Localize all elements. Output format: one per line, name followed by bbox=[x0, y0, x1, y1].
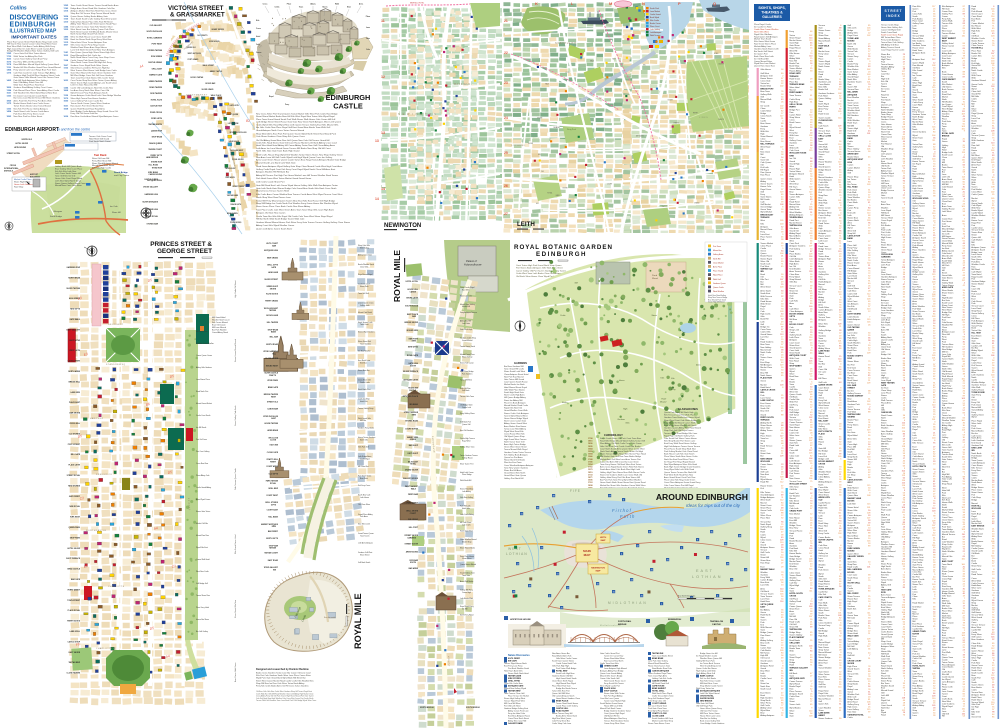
svg-text:Shop North: Shop North bbox=[847, 456, 857, 459]
svg-text:Antiques Stores: Antiques Stores bbox=[760, 546, 774, 549]
svg-text:GRILL BAR: GRILL BAR bbox=[789, 642, 800, 645]
svg-text:Crafts Shop: Crafts Shop bbox=[789, 98, 800, 101]
svg-text:33: 33 bbox=[868, 233, 871, 235]
svg-text:Queen Leith Arms Tavern South: Queen Leith Arms Tavern South Silver bbox=[256, 228, 293, 231]
svg-text:Gate West: Gate West bbox=[847, 516, 857, 519]
svg-text:Shore Hill: Shore Hill bbox=[112, 212, 121, 214]
svg-text:LEITH HOUSE: LEITH HOUSE bbox=[228, 123, 239, 125]
svg-text:34: 34 bbox=[868, 151, 871, 153]
svg-text:Row Arms Lane Hill Grill Castl: Row Arms Lane Hill Grill Castle Wynd Lei… bbox=[256, 156, 333, 159]
svg-text:Park Hotel: Park Hotel bbox=[818, 95, 828, 98]
svg-text:South Cafe: South Cafe bbox=[760, 262, 771, 265]
svg-text:Gifts Walk: Gifts Walk bbox=[818, 145, 827, 148]
svg-text:Leith Abbey: Leith Abbey bbox=[847, 648, 857, 651]
svg-text:West: West bbox=[847, 670, 852, 673]
svg-text:1676: 1676 bbox=[7, 61, 12, 63]
svg-text:Abbey: Abbey bbox=[310, 3, 315, 6]
svg-text:Park: Park bbox=[760, 239, 764, 241]
svg-text:Antiques Mound: Antiques Mound bbox=[789, 173, 803, 176]
svg-text:OLD CRAFTS: OLD CRAFTS bbox=[197, 34, 207, 37]
svg-text:Cross: Cross bbox=[263, 4, 268, 6]
svg-text:Antiques South: Antiques South bbox=[789, 693, 803, 696]
svg-text:Leith Place: Leith Place bbox=[789, 336, 800, 339]
svg-text:75: 75 bbox=[810, 481, 813, 483]
svg-text:26: 26 bbox=[868, 324, 871, 326]
svg-text:Shore Castle: Shore Castle bbox=[818, 422, 830, 425]
svg-text:Arms Terrace: Arms Terrace bbox=[818, 132, 831, 135]
svg-text:Close Abbey: Close Abbey bbox=[818, 476, 829, 479]
svg-text:Court Town: Court Town bbox=[847, 374, 857, 377]
svg-text:Castle Grand: Castle Grand bbox=[650, 13, 661, 16]
svg-text:Grill Tartan: Grill Tartan bbox=[789, 413, 799, 416]
svg-text:Kilts Kilts: Kilts Kilts bbox=[760, 297, 768, 300]
svg-text:Town South South Crafts Galler: Town South South Crafts Gallery East Wes… bbox=[71, 18, 117, 21]
svg-text:East: East bbox=[760, 308, 764, 311]
svg-text:Wynd Terrace Ferry Park Antiqu: Wynd Terrace Ferry Park Antiques South bbox=[71, 91, 108, 94]
svg-text:Shop Mill Bridge Inn Castle No: Shop Mill Bridge Inn Castle North Port W… bbox=[256, 202, 338, 205]
svg-text:13: 13 bbox=[375, 139, 379, 143]
svg-text:CANON QUEEN: CANON QUEEN bbox=[149, 142, 163, 145]
svg-text:75: 75 bbox=[868, 393, 871, 395]
svg-text:Port Gallery: Port Gallery bbox=[789, 247, 800, 250]
svg-text:LANE ROAD: LANE ROAD bbox=[818, 350, 830, 353]
svg-text:115: 115 bbox=[809, 150, 813, 152]
svg-text:Silver Hotel: Silver Hotel bbox=[789, 86, 800, 89]
svg-text:East Street: East Street bbox=[818, 417, 828, 420]
svg-text:South East: South East bbox=[760, 292, 770, 295]
svg-text:61: 61 bbox=[839, 710, 842, 712]
svg-text:Abbey Antiques: Abbey Antiques bbox=[818, 481, 832, 484]
svg-text:Port West: Port West bbox=[760, 265, 769, 268]
svg-text:North Tartan High Grand Park G: North Tartan High Grand Park Green bbox=[71, 33, 104, 36]
svg-text:103: 103 bbox=[780, 287, 784, 289]
svg-text:NORTH CRAFTS: NORTH CRAFTS bbox=[818, 539, 834, 542]
svg-text:Crafts: Crafts bbox=[818, 204, 823, 207]
svg-text:Gifts: Gifts bbox=[760, 315, 764, 318]
svg-text:Stores Canon: Stores Canon bbox=[818, 207, 830, 210]
svg-text:Ferry: Ferry bbox=[789, 31, 794, 33]
svg-text:Kirk Leith: Kirk Leith bbox=[847, 211, 855, 214]
svg-text:Road Hill: Road Hill bbox=[760, 482, 769, 484]
svg-text:Bank Street: Bank Street bbox=[847, 379, 858, 382]
svg-text:Court Grand: Court Grand bbox=[818, 491, 829, 494]
svg-text:Brae Crafts: Brae Crafts bbox=[760, 404, 770, 407]
svg-text:Tavern Stores: Tavern Stores bbox=[847, 522, 859, 525]
svg-text:69: 69 bbox=[810, 222, 813, 224]
svg-text:Court North: Court North bbox=[847, 201, 857, 204]
svg-text:Hotel Brae: Hotel Brae bbox=[760, 600, 770, 603]
svg-text:East: East bbox=[760, 565, 764, 568]
svg-text:61: 61 bbox=[839, 703, 842, 705]
svg-text:MOUND: MOUND bbox=[847, 551, 855, 553]
svg-text:G R A S S M A R K E T: G R A S S M A R K E T bbox=[186, 94, 208, 97]
svg-text:Grill Market: Grill Market bbox=[760, 203, 771, 206]
svg-text:CROSS GALLERY: CROSS GALLERY bbox=[143, 186, 159, 189]
svg-text:North: North bbox=[789, 505, 794, 508]
svg-text:26: 26 bbox=[504, 184, 508, 188]
svg-text:Gifts: Gifts bbox=[818, 156, 822, 159]
svg-text:Books Canon: Books Canon bbox=[650, 23, 661, 25]
svg-text:Place New: Place New bbox=[760, 518, 770, 520]
svg-text:25: 25 bbox=[781, 380, 784, 382]
svg-text:New Gifts: New Gifts bbox=[818, 86, 827, 89]
svg-text:BOOKS TARTAN: BOOKS TARTAN bbox=[191, 76, 204, 79]
svg-text:1110: 1110 bbox=[7, 67, 12, 69]
svg-text:Crafts Books: Crafts Books bbox=[847, 316, 858, 319]
svg-text:Shore Gifts: Shore Gifts bbox=[847, 509, 857, 512]
svg-text:Antiques Silver: Antiques Silver bbox=[818, 212, 832, 215]
svg-text:Castle: Castle bbox=[789, 385, 796, 388]
svg-text:WEST: WEST bbox=[847, 482, 853, 484]
svg-text:South: South bbox=[847, 450, 852, 453]
svg-text:Lane Market: Lane Market bbox=[650, 10, 660, 13]
svg-text:Tartan: Tartan bbox=[789, 34, 795, 37]
svg-text:51: 51 bbox=[868, 658, 871, 660]
svg-text:Grill Gifts: Grill Gifts bbox=[789, 388, 797, 391]
svg-text:84: 84 bbox=[810, 651, 813, 653]
svg-text:27: 27 bbox=[504, 212, 508, 216]
svg-text:Mill Castle: Mill Castle bbox=[760, 198, 770, 201]
svg-text:45: 45 bbox=[810, 352, 813, 354]
svg-text:Kilts Crafts Arms Canon Woolle: Kilts Crafts Arms Canon Woollen Brae Ter… bbox=[256, 193, 343, 196]
svg-text:72: 72 bbox=[810, 214, 813, 216]
svg-text:TARTAN KIRK: TARTAN KIRK bbox=[789, 628, 802, 631]
svg-text:33: 33 bbox=[839, 320, 842, 322]
svg-text:New Kirk Port House Gallery An: New Kirk Port House Gallery Antiques bbox=[14, 107, 48, 110]
svg-text:101: 101 bbox=[867, 89, 871, 91]
svg-text:Forth Bridge: Forth Bridge bbox=[50, 215, 63, 218]
svg-text:New Market: New Market bbox=[789, 513, 800, 516]
svg-text:Gate: Gate bbox=[366, 37, 370, 40]
svg-text:1405: 1405 bbox=[7, 79, 12, 82]
svg-text:20: 20 bbox=[839, 667, 842, 669]
svg-text:101: 101 bbox=[867, 567, 871, 569]
svg-text:Court Lane: Court Lane bbox=[818, 237, 829, 240]
svg-text:Lane Kilts: Lane Kilts bbox=[760, 584, 769, 587]
svg-text:Wynd Market: Wynd Market bbox=[847, 295, 859, 298]
svg-text:Silver Gate: Silver Gate bbox=[760, 427, 771, 430]
svg-text:115: 115 bbox=[809, 363, 813, 365]
svg-text:Bank Wynd: Bank Wynd bbox=[650, 17, 659, 19]
svg-text:1350: 1350 bbox=[64, 39, 69, 41]
svg-text:KILTS: KILTS bbox=[565, 72, 569, 74]
svg-text:68: 68 bbox=[868, 477, 871, 479]
svg-text:Gate Stores Gifts Mound Cross: Gate Stores Gifts Mound Cross Kilts Terr… bbox=[14, 76, 60, 79]
svg-text:Gate Bank: Gate Bank bbox=[847, 492, 856, 495]
svg-text:80: 80 bbox=[810, 489, 813, 491]
svg-text:BOOKS MARKET: BOOKS MARKET bbox=[818, 460, 834, 463]
svg-text:Cross Gate: Cross Gate bbox=[760, 80, 771, 83]
svg-text:Cafe: Cafe bbox=[256, 44, 260, 46]
svg-text:Walk Street: Walk Street bbox=[760, 302, 771, 305]
svg-text:Crafts: Crafts bbox=[275, 6, 280, 9]
svg-text:Place Court: Place Court bbox=[650, 25, 660, 28]
svg-text:BRAE QUEEN: BRAE QUEEN bbox=[227, 212, 238, 215]
svg-text:West Street: West Street bbox=[760, 286, 771, 289]
svg-text:GALLERY GREEN: GALLERY GREEN bbox=[847, 555, 864, 558]
svg-text:Port Green: Port Green bbox=[818, 643, 828, 646]
svg-text:Town Terrace: Town Terrace bbox=[789, 95, 802, 97]
svg-text:Walk Court: Walk Court bbox=[789, 357, 799, 360]
svg-text:North Royal: North Royal bbox=[760, 523, 771, 526]
svg-text:EAST: EAST bbox=[818, 137, 824, 140]
svg-text:Place Street: Place Street bbox=[760, 434, 771, 437]
svg-text:Abbey: Abbey bbox=[818, 296, 824, 299]
svg-text:88: 88 bbox=[839, 348, 842, 350]
svg-text:24: 24 bbox=[839, 444, 842, 446]
svg-text:Canon Gifts: Canon Gifts bbox=[789, 195, 800, 198]
svg-text:114: 114 bbox=[838, 687, 842, 689]
svg-text:Kilts: Kilts bbox=[847, 657, 851, 660]
svg-text:1454: 1454 bbox=[7, 110, 12, 113]
svg-text:NEW: NEW bbox=[612, 58, 616, 60]
svg-text:Terrace Court: Terrace Court bbox=[789, 284, 802, 287]
svg-text:SHORE ROW: SHORE ROW bbox=[151, 161, 162, 163]
svg-text:89: 89 bbox=[810, 704, 813, 706]
svg-text:Silver High Tavern Row House G: Silver High Tavern Row House Gardens bbox=[71, 97, 107, 100]
svg-text:OLD TARTAN: OLD TARTAN bbox=[847, 326, 860, 329]
svg-text:N E W I N G T O N: N E W I N G T O N bbox=[398, 112, 437, 116]
svg-text:Antiques Grill: Antiques Grill bbox=[760, 75, 772, 78]
svg-text:West: West bbox=[789, 165, 794, 168]
svg-text:Abbey Close: Abbey Close bbox=[760, 707, 772, 710]
svg-text:High Arms: High Arms bbox=[789, 263, 798, 266]
svg-text:TAVERN: TAVERN bbox=[847, 416, 855, 419]
svg-text:Brae West: Brae West bbox=[760, 669, 770, 672]
svg-text:Stores Brae: Stores Brae bbox=[847, 217, 858, 220]
svg-text:Castle: Castle bbox=[818, 242, 825, 245]
svg-text:Leith Shore: Leith Shore bbox=[789, 459, 800, 462]
svg-text:Hotel Antiques: Hotel Antiques bbox=[818, 280, 831, 283]
svg-text:TARTAN NORTH: TARTAN NORTH bbox=[148, 123, 162, 126]
svg-text:Hotel Grill: Hotel Grill bbox=[847, 129, 856, 132]
svg-text:South Woollen: South Woollen bbox=[847, 342, 860, 345]
svg-text:EDINBURGH: EDINBURGH bbox=[10, 22, 56, 29]
svg-text:89: 89 bbox=[868, 545, 871, 547]
svg-text:Mill Tartan: Mill Tartan bbox=[760, 652, 769, 655]
svg-text:Stores Gardens: Stores Gardens bbox=[818, 717, 832, 720]
svg-text:1295: 1295 bbox=[7, 53, 12, 55]
svg-text:Market: Market bbox=[847, 99, 854, 102]
svg-text:TOWN ANTIQUES: TOWN ANTIQUES bbox=[818, 588, 835, 591]
svg-text:Hotel: Hotel bbox=[818, 391, 823, 394]
svg-text:PORT WEST: PORT WEST bbox=[152, 44, 163, 46]
svg-text:Market: Market bbox=[847, 539, 854, 542]
svg-text:High Hotel: High Hotel bbox=[847, 532, 857, 535]
svg-text:Abbey North: Abbey North bbox=[760, 422, 771, 425]
svg-text:HILL BAR: HILL BAR bbox=[847, 384, 856, 387]
svg-text:North Row: North Row bbox=[760, 685, 770, 688]
svg-text:Gallery Crafts Royal Court Kir: Gallery Crafts Royal Court Kirk Ferry Co… bbox=[256, 168, 336, 171]
svg-text:WOOLLEN WOOLLEN: WOOLLEN WOOLLEN bbox=[230, 132, 248, 134]
svg-text:Arms: Arms bbox=[789, 302, 794, 305]
svg-text:B2: B2 bbox=[246, 119, 250, 123]
svg-text:Grill: Grill bbox=[847, 172, 851, 174]
svg-text:Stores Royal: Stores Royal bbox=[760, 257, 772, 260]
svg-text:27: 27 bbox=[781, 562, 784, 564]
svg-text:Row Place: Row Place bbox=[760, 175, 770, 177]
svg-text:Kilts Street: Kilts Street bbox=[789, 499, 799, 502]
svg-text:LEITH TAVERN: LEITH TAVERN bbox=[847, 313, 861, 316]
svg-text:Hotel Park: Hotel Park bbox=[789, 492, 798, 495]
svg-text:1623: 1623 bbox=[7, 59, 12, 61]
svg-text:North Canon: North Canon bbox=[818, 65, 829, 68]
svg-text:Bar Gate: Bar Gate bbox=[847, 431, 856, 434]
svg-text:Kirk Gifts: Kirk Gifts bbox=[847, 471, 855, 474]
svg-text:LANE BRIDGE: LANE BRIDGE bbox=[146, 156, 159, 159]
svg-text:13: 13 bbox=[781, 585, 784, 587]
svg-text:West: West bbox=[789, 240, 794, 243]
svg-text:Queen Stores Gallery Books Abb: Queen Stores Gallery Books Abbey Gate bbox=[71, 15, 109, 18]
svg-text:FERRY ABBEY: FERRY ABBEY bbox=[789, 91, 803, 94]
svg-text:HILL ROAD: HILL ROAD bbox=[847, 186, 858, 189]
svg-text:East: East bbox=[847, 584, 851, 587]
svg-text:BRIDGE EAST: BRIDGE EAST bbox=[760, 213, 774, 216]
svg-text:Park South North Canon: Park South North Canon bbox=[89, 140, 111, 143]
svg-text:Castle Town Bar Gifts Kilts Ro: Castle Town Bar Gifts Kilts Royal Old Ca… bbox=[256, 215, 333, 218]
svg-text:1578: 1578 bbox=[7, 64, 12, 66]
svg-text:K: K bbox=[535, 1, 538, 6]
svg-text:N O R T H L E I T H: N O R T H L E I T H bbox=[555, 42, 576, 45]
svg-text:Kilts: Kilts bbox=[818, 443, 822, 446]
svg-text:Gallery South: Gallery South bbox=[789, 334, 801, 337]
svg-text:Gifts: Gifts bbox=[818, 171, 822, 174]
svg-text:Leith Bridge Street Street Hou: Leith Bridge Street Street House Gate Ga… bbox=[256, 121, 342, 124]
svg-text:GARDENS HIGH: GARDENS HIGH bbox=[144, 193, 158, 196]
svg-text:27: 27 bbox=[810, 675, 813, 677]
svg-text:Mound South: Mound South bbox=[818, 39, 830, 42]
svg-text:36: 36 bbox=[839, 594, 842, 596]
svg-text:Row Queen Port Green Market Ro: Row Queen Port Green Market Row bbox=[71, 105, 104, 108]
svg-text:Abbey Kirk: Abbey Kirk bbox=[789, 206, 799, 209]
svg-text:Kilts Castle: Kilts Castle bbox=[650, 19, 659, 22]
svg-text:Port: Port bbox=[847, 209, 851, 212]
svg-text:Queen Kirk: Queen Kirk bbox=[818, 703, 828, 705]
svg-text:Castle: Castle bbox=[847, 587, 854, 590]
svg-text:Market Lane: Market Lane bbox=[818, 50, 830, 53]
svg-text:GRILL EAST: GRILL EAST bbox=[152, 67, 163, 70]
svg-text:West: West bbox=[760, 219, 765, 222]
svg-text:Abbey: Abbey bbox=[847, 627, 853, 630]
svg-text:Royal Stores: Royal Stores bbox=[818, 583, 829, 586]
svg-text:INN: INN bbox=[760, 271, 764, 273]
svg-text:Mound Arms: Mound Arms bbox=[789, 235, 800, 238]
svg-text:Leith Inn Gate House Bar Mill: Leith Inn Gate House Bar Mill bbox=[71, 84, 98, 87]
svg-text:Road Leith: Road Leith bbox=[789, 444, 799, 447]
svg-text:TERRACE: TERRACE bbox=[760, 419, 770, 422]
svg-text:HOTEL GARDENS: HOTEL GARDENS bbox=[147, 36, 163, 39]
svg-text:Street Place: Street Place bbox=[847, 344, 859, 347]
svg-text:Gate Kirk: Gate Kirk bbox=[789, 442, 797, 445]
svg-text:Kilts Kilts High Castle: Kilts Kilts High Castle bbox=[92, 167, 112, 170]
svg-text:South Court: South Court bbox=[760, 687, 771, 690]
svg-text:Cross South: Cross South bbox=[760, 115, 771, 118]
svg-text:Tavern Market: Tavern Market bbox=[789, 67, 802, 70]
svg-text:Grill Crafts: Grill Crafts bbox=[760, 704, 769, 707]
svg-text:1210: 1210 bbox=[64, 21, 69, 23]
svg-text:Stores: Stores bbox=[760, 644, 766, 647]
svg-text:LEITH MOUND: LEITH MOUND bbox=[14, 147, 27, 149]
svg-text:HOTEL SILVER: HOTEL SILVER bbox=[15, 143, 28, 145]
svg-text:West House: West House bbox=[818, 404, 830, 407]
svg-text:1216: 1216 bbox=[64, 11, 69, 13]
svg-text:BANK: BANK bbox=[847, 137, 853, 140]
svg-text:Queen North: Queen North bbox=[847, 219, 858, 222]
svg-text:CASTLE HIGH: CASTLE HIGH bbox=[150, 105, 163, 108]
svg-text:Grill Leith: Grill Leith bbox=[818, 381, 826, 384]
svg-text:1824: 1824 bbox=[64, 15, 69, 18]
svg-text:Gate Stores: Gate Stores bbox=[847, 112, 858, 115]
svg-text:INN: INN bbox=[789, 670, 793, 672]
svg-text:Kilts West: Kilts West bbox=[818, 428, 827, 431]
svg-text:North Wynd: North Wynd bbox=[818, 102, 829, 105]
svg-text:8: 8 bbox=[782, 387, 784, 389]
svg-text:Kilts House: Kilts House bbox=[789, 52, 800, 55]
svg-text:Town Tartan: Town Tartan bbox=[847, 70, 858, 73]
svg-text:East Tartan: East Tartan bbox=[818, 105, 828, 108]
svg-text:Hill Bar North Walk South Brid: Hill Bar North Walk South Bridge Tavern … bbox=[256, 218, 305, 221]
svg-text:LEITH: LEITH bbox=[517, 221, 535, 228]
svg-text:TARTAN OLD: TARTAN OLD bbox=[760, 267, 773, 270]
svg-text:1244: 1244 bbox=[64, 86, 69, 89]
svg-text:SILVER GRAND: SILVER GRAND bbox=[202, 88, 215, 91]
svg-text:Street North: Street North bbox=[789, 351, 800, 354]
svg-text:Grand Stores: Grand Stores bbox=[760, 333, 772, 336]
svg-text:Road Crafts: Road Crafts bbox=[847, 566, 858, 569]
svg-text:MOUND MARKET: MOUND MARKET bbox=[847, 395, 864, 398]
svg-text:Abbey Gallery: Abbey Gallery bbox=[760, 639, 773, 642]
svg-text:Leith: Leith bbox=[818, 42, 822, 45]
svg-text:Kirk Leith: Kirk Leith bbox=[760, 166, 768, 169]
svg-text:102: 102 bbox=[867, 35, 871, 37]
svg-text:Abbey Shore: Abbey Shore bbox=[818, 347, 830, 350]
svg-text:Tartan Abbey: Tartan Abbey bbox=[847, 640, 859, 643]
svg-text:Street Gate: Street Gate bbox=[760, 452, 771, 455]
svg-text:Gifts: Gifts bbox=[818, 468, 822, 471]
svg-text:Shore Antiques: Shore Antiques bbox=[818, 178, 832, 181]
svg-text:114: 114 bbox=[780, 601, 784, 603]
svg-text:1690: 1690 bbox=[64, 101, 69, 103]
svg-text:Shore Green Place Close Bank C: Shore Green Place Close Bank Castle Row … bbox=[256, 205, 311, 208]
svg-text:12: 12 bbox=[810, 514, 813, 516]
svg-text:Wynd: Wynd bbox=[818, 560, 823, 562]
svg-text:Leith Lane: Leith Lane bbox=[818, 240, 828, 243]
svg-text:23: 23 bbox=[504, 81, 508, 85]
svg-text:Gate Green: Gate Green bbox=[818, 670, 828, 673]
svg-text:Road Green Antiques Wynd Galle: Road Green Antiques Wynd Gallery Gate Sh… bbox=[256, 165, 342, 168]
svg-text:North Gifts Gate Gate Town Ban: North Gifts Gate Gate Town Bank High Gra… bbox=[256, 150, 300, 153]
svg-text:P: P bbox=[678, 1, 681, 6]
svg-text:Castle House: Castle House bbox=[818, 502, 831, 505]
svg-text:Tavern Castle: Tavern Castle bbox=[818, 116, 831, 119]
svg-text:61: 61 bbox=[810, 95, 813, 97]
svg-text:56: 56 bbox=[868, 649, 871, 651]
svg-text:BAR: BAR bbox=[818, 47, 823, 50]
svg-text:Market Town: Market Town bbox=[789, 560, 800, 563]
svg-text:MILL: MILL bbox=[538, 154, 542, 156]
svg-text:Stores: Stores bbox=[818, 260, 824, 263]
svg-text:Arms: Arms bbox=[818, 265, 823, 268]
svg-text:13: 13 bbox=[381, 131, 385, 135]
svg-text:Abbey Tavern: Abbey Tavern bbox=[760, 429, 772, 432]
svg-text:Market: Market bbox=[847, 376, 854, 379]
svg-text:WYND LEITH: WYND LEITH bbox=[151, 118, 163, 120]
svg-text:Crafts: Crafts bbox=[760, 533, 765, 536]
svg-text:Lane: Lane bbox=[366, 27, 370, 29]
svg-text:49: 49 bbox=[868, 172, 871, 174]
svg-text:Lane: Lane bbox=[847, 241, 852, 243]
svg-text:ROW TAVERN: ROW TAVERN bbox=[150, 92, 162, 95]
